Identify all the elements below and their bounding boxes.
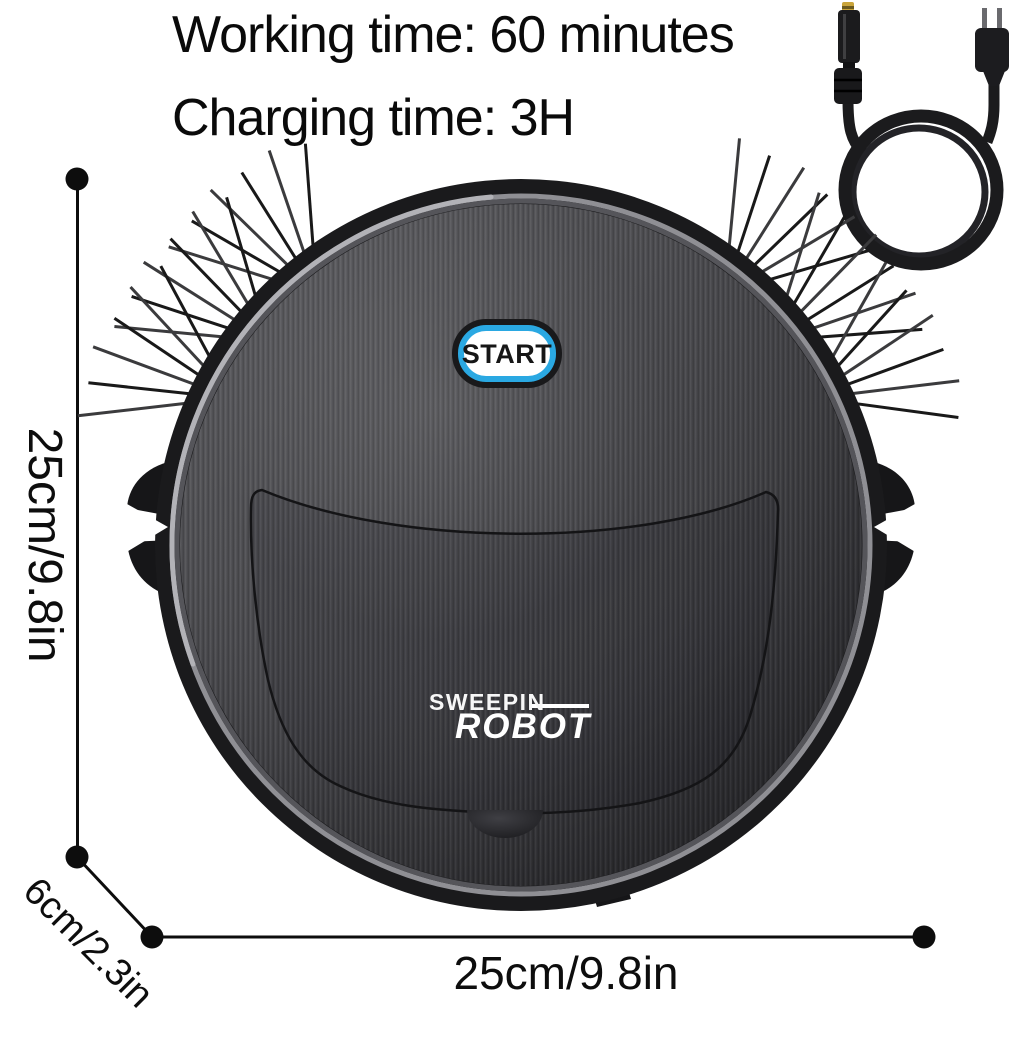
dustbin-lid: [251, 490, 778, 813]
dim-dot: [66, 846, 89, 869]
charging-cable: [834, 2, 1009, 264]
side-brush-bristle: [88, 383, 202, 395]
usb-plug-body: [975, 28, 1009, 72]
header-working-time: Working time: 60 minutes: [172, 5, 734, 65]
header-charging-time: Charging time: 3H: [172, 88, 574, 148]
side-brush-bristle: [227, 197, 260, 309]
dim-dot: [141, 926, 164, 949]
side-brush-bristle: [728, 138, 740, 260]
scene-graphic: [0, 0, 1024, 1024]
dc-plug-barrel: [838, 10, 860, 63]
start-button-label: START: [452, 341, 562, 368]
dim-left-label: 25cm/9.8in: [19, 395, 69, 695]
dc-plug: [834, 2, 862, 104]
side-brush-bristle: [305, 144, 314, 261]
dc-plug-collar: [834, 68, 862, 104]
dim-bottom-label: 25cm/9.8in: [416, 946, 716, 1000]
dim-dot: [66, 168, 89, 191]
cable-left-segment: [848, 100, 862, 152]
side-brush-bristle: [131, 287, 213, 375]
dc-plug-tip-band: [842, 6, 854, 9]
usb-plug: [975, 8, 1009, 86]
side-brush-bristle: [840, 381, 960, 395]
side-brush-bristle: [757, 251, 869, 284]
robot-vacuum: [78, 138, 959, 911]
dc-plug-barrel-highlight: [843, 14, 846, 59]
dim-dot: [913, 926, 936, 949]
usb-plug-strain-relief: [983, 71, 1005, 86]
brand-robot: ROBOT: [455, 707, 605, 747]
